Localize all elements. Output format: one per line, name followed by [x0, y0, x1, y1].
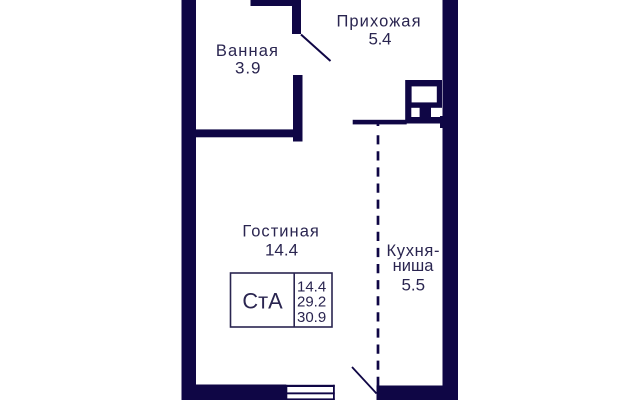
svg-text:Гостиная: Гостиная [242, 223, 319, 241]
svg-text:14.4: 14.4 [265, 240, 298, 259]
svg-text:30.9: 30.9 [297, 309, 326, 326]
svg-text:Прихожая: Прихожая [337, 13, 421, 31]
svg-text:СтА: СтА [242, 289, 283, 314]
svg-text:3.9: 3.9 [235, 59, 261, 78]
svg-text:Ванная: Ванная [216, 42, 278, 60]
svg-text:ниша: ниша [393, 257, 435, 275]
svg-text:5.5: 5.5 [401, 276, 425, 295]
svg-text:5.4: 5.4 [369, 30, 392, 49]
